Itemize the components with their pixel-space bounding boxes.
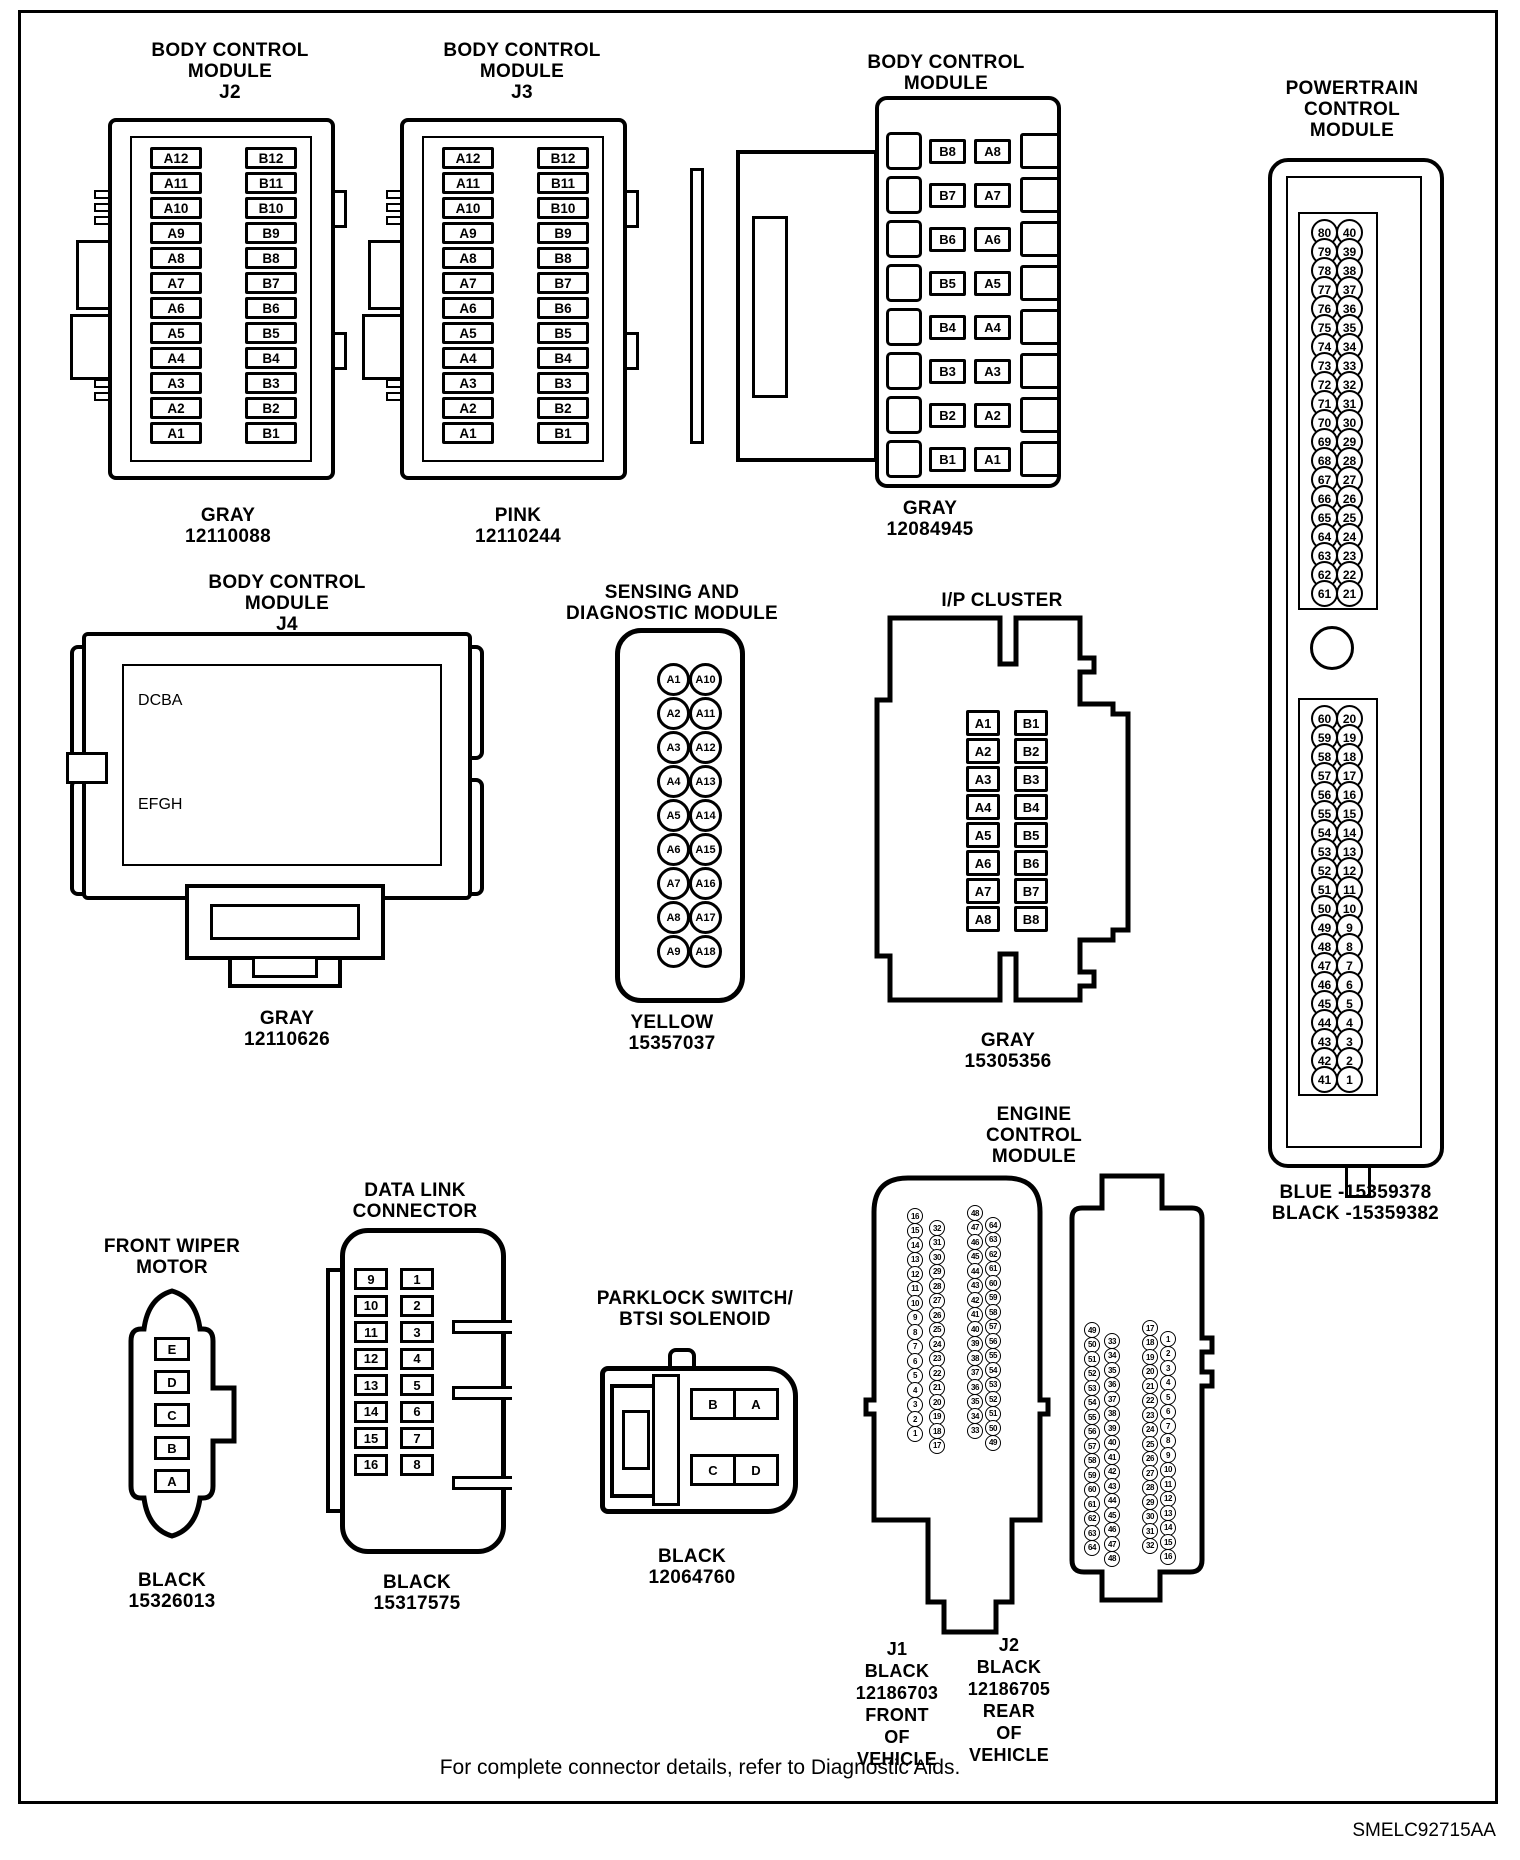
pcm-pin-pair-label: 61 xyxy=(1311,580,1338,607)
ecm-j2-pin-column-1: 49505152535455565758596061626364 xyxy=(1084,1322,1100,1554)
bcm-j1-pin-row: B7A7 xyxy=(886,178,1060,212)
bcm-j3-pin: A7 xyxy=(442,272,494,294)
ip-cluster-pin: A6 xyxy=(966,850,1000,876)
dlc-pin: 2 xyxy=(400,1295,434,1317)
ecm-pin: 50 xyxy=(985,1420,1001,1436)
dlc-right-slot-2 xyxy=(452,1386,512,1400)
pcm-pin-pair: 411 xyxy=(1311,1066,1376,1093)
bcm-j1-pin-row: B4A4 xyxy=(886,310,1060,344)
sdm-pin-pair-label: A13 xyxy=(689,765,722,798)
bcm-j2-pin: B10 xyxy=(245,197,297,219)
bcm-j3-caption: PINK 12110244 xyxy=(418,505,618,547)
ecm-pin: 1 xyxy=(907,1426,923,1442)
bcm-j2-pin: A6 xyxy=(150,297,202,319)
wiper-pin-column: EDCBA xyxy=(154,1337,190,1502)
bcm-j1-mating-slot xyxy=(752,216,788,398)
ecm-pin: 27 xyxy=(1142,1465,1158,1481)
ecm-pin: 6 xyxy=(907,1353,923,1369)
bcm-j3-pin: A6 xyxy=(442,297,494,319)
dlc-caption: BLACK 15317575 xyxy=(317,1572,517,1614)
bcm-j4-pin: A xyxy=(172,692,183,710)
bcm-j4-pin: F xyxy=(149,796,159,814)
ecm-pin: 45 xyxy=(1104,1507,1120,1523)
ecm-pin: 42 xyxy=(967,1292,983,1308)
ecm-pin: 57 xyxy=(1084,1438,1100,1454)
pcm-pin-pair-label: 1 xyxy=(1336,1066,1363,1093)
ecm-pin: 2 xyxy=(907,1411,923,1427)
parklock-pin-row-label: A xyxy=(733,1388,779,1420)
bcm-j1-pin-row-label: A2 xyxy=(974,403,1011,428)
ecm-pin: 30 xyxy=(929,1249,945,1265)
sdm-pin-pair-label: A10 xyxy=(689,663,722,696)
sdm-pin-pair-label: A14 xyxy=(689,799,722,832)
parklock-pin-row: CD xyxy=(690,1454,776,1486)
ecm-pin: 48 xyxy=(1104,1551,1120,1567)
sdm-pin-pair: A6A15 xyxy=(657,833,722,866)
sdm-pin-pair-label: A4 xyxy=(657,765,690,798)
bcm-j2-pin: B2 xyxy=(245,397,297,419)
wiper-pin: B xyxy=(154,1436,190,1460)
ecm-pin: 46 xyxy=(967,1234,983,1250)
dlc-pin: 8 xyxy=(400,1454,434,1476)
dlc-pin-column-right: 12345678 xyxy=(400,1268,434,1480)
bcm-j1-pin-row-label: A5 xyxy=(974,271,1011,296)
ecm-pin: 17 xyxy=(929,1438,945,1454)
ecm-pin: 24 xyxy=(929,1336,945,1352)
sdm-pin-pair-label: A17 xyxy=(689,901,722,934)
ip-cluster-pin: A8 xyxy=(966,906,1000,932)
bcm-j4-pin-row-bottom: EFGH xyxy=(138,796,182,814)
dlc-pin: 7 xyxy=(400,1427,434,1449)
bcm-j3-pin: B1 xyxy=(537,422,589,444)
bcm-j1-pin-rows: B8A8B7A7B6A6B5A5B4A4B3A3B2A2B1A1 xyxy=(886,134,1060,476)
ecm-pin: 22 xyxy=(929,1365,945,1381)
ecm-pin: 5 xyxy=(1160,1389,1176,1405)
dlc-pin: 6 xyxy=(400,1401,434,1423)
ecm-pin: 23 xyxy=(1142,1407,1158,1423)
bcm-j3-pin: B4 xyxy=(537,347,589,369)
bcm-j4-pin-row-top: DCBA xyxy=(138,692,182,710)
ecm-pin: 16 xyxy=(1160,1549,1176,1565)
document-code: SMELC92715AA xyxy=(1280,1820,1496,1842)
sdm-pin-pair: A8A17 xyxy=(657,901,722,934)
pcm-pin-block-top: 8040793978387737763675357434733372327131… xyxy=(1298,212,1378,610)
bcm-j3-pin: A1 xyxy=(442,422,494,444)
bcm-j2-pin: A1 xyxy=(150,422,202,444)
ip-cluster-pin-column-b: B1B2B3B4B5B6B7B8 xyxy=(1014,710,1048,934)
sdm-pin-pair: A7A16 xyxy=(657,867,722,900)
dlc-pin: 14 xyxy=(354,1401,388,1423)
ecm-j2-outline xyxy=(1055,1148,1225,1606)
bcm-j2-pin: A10 xyxy=(150,197,202,219)
bcm-j2-pin: B5 xyxy=(245,322,297,344)
ecm-j2-pin-column-2: 33343536373839404142434445464748 xyxy=(1104,1333,1120,1565)
dlc-pin: 4 xyxy=(400,1348,434,1370)
bcm-j1-pin-row-label: B3 xyxy=(929,359,966,384)
dlc-pin: 9 xyxy=(354,1268,388,1290)
ecm-pin: 48 xyxy=(967,1205,983,1221)
bcm-j2-pin: B9 xyxy=(245,222,297,244)
ip-cluster-pin: A3 xyxy=(966,766,1000,792)
sdm-pin-pair-label: A15 xyxy=(689,833,722,866)
bcm-j1-left-flange xyxy=(690,168,704,444)
bcm-j4-lock-tab-inner xyxy=(210,904,360,940)
ecm-pin: 60 xyxy=(985,1275,1001,1291)
bcm-j1-pin-row: B6A6 xyxy=(886,222,1060,256)
ip-cluster-pin: A4 xyxy=(966,794,1000,820)
dlc-pin: 16 xyxy=(354,1454,388,1476)
ip-cluster-pin: B7 xyxy=(1014,878,1048,904)
ecm-pin: 32 xyxy=(1142,1538,1158,1554)
bcm-j1-pin-row-label: B4 xyxy=(929,315,966,340)
sdm-pin-pair: A5A14 xyxy=(657,799,722,832)
bcm-j4-pin: C xyxy=(150,692,162,710)
ip-cluster-pin: A2 xyxy=(966,738,1000,764)
bcm-j3-pin: A12 xyxy=(442,147,494,169)
ecm-pin: 11 xyxy=(1160,1476,1176,1492)
sdm-pin-pair-label: A12 xyxy=(689,731,722,764)
bcm-j1-pin-row-label: A8 xyxy=(974,139,1011,164)
ecm-j2-pin-column-4: 12345678910111213141516 xyxy=(1160,1331,1176,1563)
pcm-pin-pair-label: 21 xyxy=(1336,580,1363,607)
bcm-j1-pin-row-label: B6 xyxy=(929,227,966,252)
ecm-pin: 3 xyxy=(1160,1360,1176,1376)
ecm-pin: 9 xyxy=(1160,1447,1176,1463)
bcm-j3-pin-column-b: B12B11B10B9B8B7B6B5B4B3B2B1 xyxy=(537,147,589,447)
pcm-caption: BLUE -15359378 BLACK -15359382 xyxy=(1248,1182,1463,1224)
bcm-j1-pin-row-label: A3 xyxy=(974,359,1011,384)
wiper-pin: D xyxy=(154,1370,190,1394)
dlc-pin: 10 xyxy=(354,1295,388,1317)
bcm-j3-pin: B10 xyxy=(537,197,589,219)
bcm-j3-pin: B11 xyxy=(537,172,589,194)
bcm-j3-pin: A5 xyxy=(442,322,494,344)
ecm-j2-caption: J2 BLACK 12186705 REAR OF VEHICLE xyxy=(909,1634,1109,1766)
ecm-pin: 32 xyxy=(929,1220,945,1236)
parklock-pin-rows: BACD xyxy=(690,1388,776,1486)
parklock-pin-row-label: D xyxy=(733,1454,779,1486)
bcm-j2-pin: A4 xyxy=(150,347,202,369)
ecm-pin: 64 xyxy=(1084,1540,1100,1556)
ecm-pin: 38 xyxy=(967,1350,983,1366)
ecm-pin: 56 xyxy=(985,1333,1001,1349)
ecm-pin: 29 xyxy=(1142,1494,1158,1510)
ecm-pin: 33 xyxy=(967,1423,983,1439)
bcm-j1-pin-row: B5A5 xyxy=(886,266,1060,300)
bcm-j4-pin: D xyxy=(138,692,150,710)
ecm-j1-outline xyxy=(858,1170,1058,1642)
ecm-pin: 43 xyxy=(1104,1478,1120,1494)
ip-cluster-pin: B6 xyxy=(1014,850,1048,876)
bcm-j2-pin: A3 xyxy=(150,372,202,394)
dlc-pin: 11 xyxy=(354,1321,388,1343)
ecm-pin: 41 xyxy=(1104,1449,1120,1465)
bcm-j2-pin: A9 xyxy=(150,222,202,244)
ecm-pin: 19 xyxy=(1142,1349,1158,1365)
sdm-pin-pair-label: A6 xyxy=(657,833,690,866)
bcm-j1-pin-row-label: B8 xyxy=(929,139,966,164)
ecm-j1-pin-column-4: 64636261605958575655545352515049 xyxy=(985,1217,1001,1449)
sdm-pin-pair: A9A18 xyxy=(657,935,722,968)
bcm-j4-title: BODY CONTROL MODULE J4 xyxy=(177,572,397,635)
ecm-pin: 36 xyxy=(967,1379,983,1395)
ecm-pin: 4 xyxy=(907,1382,923,1398)
ecm-pin: 28 xyxy=(929,1278,945,1294)
ecm-pin: 54 xyxy=(985,1362,1001,1378)
ecm-pin: 59 xyxy=(1084,1467,1100,1483)
bcm-j3-pin: B6 xyxy=(537,297,589,319)
ecm-j1-pin-column-2: 32313029282726252423222120191817 xyxy=(929,1220,945,1452)
bcm-j1-pin-row-label: A6 xyxy=(974,227,1011,252)
dlc-right-slot-1 xyxy=(452,1320,512,1334)
ip-cluster-pin: B3 xyxy=(1014,766,1048,792)
bcm-j2-pin: A5 xyxy=(150,322,202,344)
bcm-j3-pin: A11 xyxy=(442,172,494,194)
parklock-latch-bar xyxy=(652,1374,680,1506)
bcm-j2-pin: A12 xyxy=(150,147,202,169)
ecm-pin: 53 xyxy=(1084,1380,1100,1396)
sdm-pin-pair-label: A9 xyxy=(657,935,690,968)
sdm-pin-pair-label: A8 xyxy=(657,901,690,934)
ecm-pin: 55 xyxy=(1084,1409,1100,1425)
ecm-pin: 39 xyxy=(1104,1420,1120,1436)
dlc-pin: 5 xyxy=(400,1374,434,1396)
bcm-j1-pin-row-label: A7 xyxy=(974,183,1011,208)
bcm-j2-pin: B1 xyxy=(245,422,297,444)
ip-cluster-pin: A5 xyxy=(966,822,1000,848)
ecm-pin: 12 xyxy=(907,1266,923,1282)
sdm-pin-pair-label: A3 xyxy=(657,731,690,764)
bcm-j4-caption: GRAY 12110626 xyxy=(187,1008,387,1050)
bcm-j1-pin-row-label: B2 xyxy=(929,403,966,428)
parklock-pin-row-label: C xyxy=(690,1454,736,1486)
bcm-j2-pin-column-b: B12B11B10B9B8B7B6B5B4B3B2B1 xyxy=(245,147,297,447)
sdm-pin-pair-label: A7 xyxy=(657,867,690,900)
bcm-j4-lock-tab-lip-inner xyxy=(252,956,318,978)
bcm-j2-pin: B3 xyxy=(245,372,297,394)
pcm-mounting-hole xyxy=(1310,626,1354,670)
ecm-pin: 31 xyxy=(1142,1523,1158,1539)
dlc-pin: 15 xyxy=(354,1427,388,1449)
bcm-j3-pin: A10 xyxy=(442,197,494,219)
ecm-pin: 13 xyxy=(1160,1505,1176,1521)
bcm-j1-pin-row: B8A8 xyxy=(886,134,1060,168)
bcm-j1-pin-row-label: B5 xyxy=(929,271,966,296)
sdm-pin-pair: A2A11 xyxy=(657,697,722,730)
ecm-pin: 8 xyxy=(907,1324,923,1340)
bcm-j4-left-notch xyxy=(66,752,108,784)
ecm-pin: 17 xyxy=(1142,1320,1158,1336)
bcm-j1-pin-row: B3A3 xyxy=(886,354,1060,388)
sdm-pin-pair: A3A12 xyxy=(657,731,722,764)
ecm-pin: 16 xyxy=(907,1208,923,1224)
bcm-j2-pin: B8 xyxy=(245,247,297,269)
ecm-pin: 49 xyxy=(985,1435,1001,1451)
wiper-pin: C xyxy=(154,1403,190,1427)
ecm-pin: 47 xyxy=(1104,1536,1120,1552)
bcm-j2-caption: GRAY 12110088 xyxy=(128,505,328,547)
wiper-pin: E xyxy=(154,1337,190,1361)
ecm-pin: 1 xyxy=(1160,1331,1176,1347)
ip-cluster-pin: B1 xyxy=(1014,710,1048,736)
sdm-pin-pairs: A1A10A2A11A3A12A4A13A5A14A6A15A7A16A8A17… xyxy=(657,663,722,968)
dlc-pin: 12 xyxy=(354,1348,388,1370)
bcm-j2-pin: A7 xyxy=(150,272,202,294)
sdm-caption: YELLOW 15357037 xyxy=(572,1012,772,1054)
bcm-j3-pin: A8 xyxy=(442,247,494,269)
bcm-j3-pin: B5 xyxy=(537,322,589,344)
bcm-j2-pin: B6 xyxy=(245,297,297,319)
bcm-j3-pin: B12 xyxy=(537,147,589,169)
ecm-pin: 61 xyxy=(1084,1496,1100,1512)
ecm-pin: 25 xyxy=(1142,1436,1158,1452)
connector-diagram-page: BODY CONTROL MODULE J2 A12A11A10A9A8A7A6… xyxy=(0,0,1520,1860)
ecm-pin: 44 xyxy=(967,1263,983,1279)
ecm-j1-pin-column-1: 16151413121110987654321 xyxy=(907,1208,923,1440)
bcm-j2-pin: B11 xyxy=(245,172,297,194)
ecm-pin: 49 xyxy=(1084,1322,1100,1338)
bcm-j1-pin-row-label: A4 xyxy=(974,315,1011,340)
bcm-j3-pin: B7 xyxy=(537,272,589,294)
wiper-caption: BLACK 15326013 xyxy=(72,1570,272,1612)
bcm-j2-pin: A8 xyxy=(150,247,202,269)
ecm-pin: 14 xyxy=(907,1237,923,1253)
bcm-j3-title: BODY CONTROL MODULE J3 xyxy=(412,40,632,103)
pcm-pin-pair-label: 41 xyxy=(1311,1066,1338,1093)
bcm-j3-pin: B8 xyxy=(537,247,589,269)
dlc-pin: 13 xyxy=(354,1374,388,1396)
sdm-pin-pair-label: A11 xyxy=(689,697,722,730)
bcm-j2-title: BODY CONTROL MODULE J2 xyxy=(120,40,340,103)
bcm-j2-pin: B12 xyxy=(245,147,297,169)
wiper-title: FRONT WIPER MOTOR xyxy=(72,1236,272,1278)
bcm-j3-pin: B9 xyxy=(537,222,589,244)
bcm-j2-pin: A11 xyxy=(150,172,202,194)
footer-note: For complete connector details, refer to… xyxy=(250,1756,1150,1780)
ecm-pin: 63 xyxy=(1084,1525,1100,1541)
ecm-pin: 20 xyxy=(929,1394,945,1410)
bcm-j1-pin-row-label: B7 xyxy=(929,183,966,208)
ip-cluster-pin: B8 xyxy=(1014,906,1048,932)
bcm-j3-pin: B3 xyxy=(537,372,589,394)
bcm-j3-pin: A9 xyxy=(442,222,494,244)
ip-cluster-outline xyxy=(860,608,1140,1010)
ip-cluster-pin: B5 xyxy=(1014,822,1048,848)
ecm-pin: 37 xyxy=(1104,1391,1120,1407)
sdm-pin-pair-label: A16 xyxy=(689,867,722,900)
bcm-j1-pin-row: B1A1 xyxy=(886,442,1060,476)
ecm-pin: 15 xyxy=(1160,1534,1176,1550)
ecm-j2-pin-column-3: 17181920212223242526272829303132 xyxy=(1142,1320,1158,1552)
sdm-pin-pair-label: A2 xyxy=(657,697,690,730)
dlc-pin: 1 xyxy=(400,1268,434,1290)
pcm-pin-pair: 6121 xyxy=(1311,580,1376,607)
ecm-pin: 34 xyxy=(967,1408,983,1424)
ip-cluster-caption: GRAY 15305356 xyxy=(908,1030,1108,1072)
ip-cluster-pin: B4 xyxy=(1014,794,1048,820)
bcm-j1-pin-row-label: A1 xyxy=(974,447,1011,472)
ecm-pin: 26 xyxy=(929,1307,945,1323)
ip-cluster-pin-column-a: A1A2A3A4A5A6A7A8 xyxy=(966,710,1000,934)
sdm-title: SENSING AND DIAGNOSTIC MODULE xyxy=(532,582,812,624)
bcm-j4-pin: B xyxy=(161,692,172,710)
sdm-pin-pair-label: A1 xyxy=(657,663,690,696)
dlc-pin-column-left: 910111213141516 xyxy=(354,1268,388,1480)
bcm-j2-pin-column-a: A12A11A10A9A8A7A6A5A4A3A2A1 xyxy=(150,147,202,447)
bcm-j2-pin: A2 xyxy=(150,397,202,419)
parklock-title: PARKLOCK SWITCH/ BTSI SOLENOID xyxy=(570,1288,820,1330)
parklock-latch-inner xyxy=(622,1410,650,1470)
ecm-pin: 64 xyxy=(985,1217,1001,1233)
wiper-pin: A xyxy=(154,1469,190,1493)
bcm-j3-pin: A3 xyxy=(442,372,494,394)
ecm-pin: 51 xyxy=(1084,1351,1100,1367)
ecm-pin: 52 xyxy=(985,1391,1001,1407)
bcm-j1-pin-row-label: B1 xyxy=(929,447,966,472)
sdm-pin-pair: A1A10 xyxy=(657,663,722,696)
bcm-j3-pin: A2 xyxy=(442,397,494,419)
ecm-pin: 35 xyxy=(1104,1362,1120,1378)
sdm-pin-pair-label: A5 xyxy=(657,799,690,832)
pcm-pin-block-bottom: 6020591958185717561655155414531352125111… xyxy=(1298,698,1378,1096)
ecm-pin: 7 xyxy=(1160,1418,1176,1434)
bcm-j4-pin: G xyxy=(158,796,170,814)
bcm-j2-pin: B4 xyxy=(245,347,297,369)
bcm-j4-pin: E xyxy=(138,796,149,814)
ip-cluster-pin: A7 xyxy=(966,878,1000,904)
ecm-pin: 21 xyxy=(1142,1378,1158,1394)
ecm-pin: 10 xyxy=(907,1295,923,1311)
bcm-j3-pin: B2 xyxy=(537,397,589,419)
parklock-pin-row: BA xyxy=(690,1388,776,1420)
dlc-pin: 3 xyxy=(400,1321,434,1343)
pcm-title: POWERTRAIN CONTROL MODULE xyxy=(1252,78,1452,141)
parklock-pin-row-label: B xyxy=(690,1388,736,1420)
dlc-right-slot-3 xyxy=(452,1476,512,1490)
bcm-j4-pin: H xyxy=(171,796,183,814)
ecm-pin: 33 xyxy=(1104,1333,1120,1349)
ecm-pin: 62 xyxy=(985,1246,1001,1262)
ecm-pin: 18 xyxy=(929,1423,945,1439)
bcm-j3-pin-column-a: A12A11A10A9A8A7A6A5A4A3A2A1 xyxy=(442,147,494,447)
dlc-title: DATA LINK CONNECTOR xyxy=(315,1180,515,1222)
ip-cluster-pin: A1 xyxy=(966,710,1000,736)
ip-cluster-pin: B2 xyxy=(1014,738,1048,764)
bcm-j2-pin: B7 xyxy=(245,272,297,294)
bcm-j1-caption: GRAY 12084945 xyxy=(830,498,1030,540)
ecm-pin: 58 xyxy=(985,1304,1001,1320)
bcm-j3-pin: A4 xyxy=(442,347,494,369)
bcm-j1-pin-row: B2A2 xyxy=(886,398,1060,432)
sdm-pin-pair-label: A18 xyxy=(689,935,722,968)
sdm-pin-pair: A4A13 xyxy=(657,765,722,798)
ecm-pin: 40 xyxy=(967,1321,983,1337)
parklock-caption: BLACK 12064760 xyxy=(592,1546,792,1588)
ecm-j1-pin-column-3: 48474645444342414039383736353433 xyxy=(967,1205,983,1437)
